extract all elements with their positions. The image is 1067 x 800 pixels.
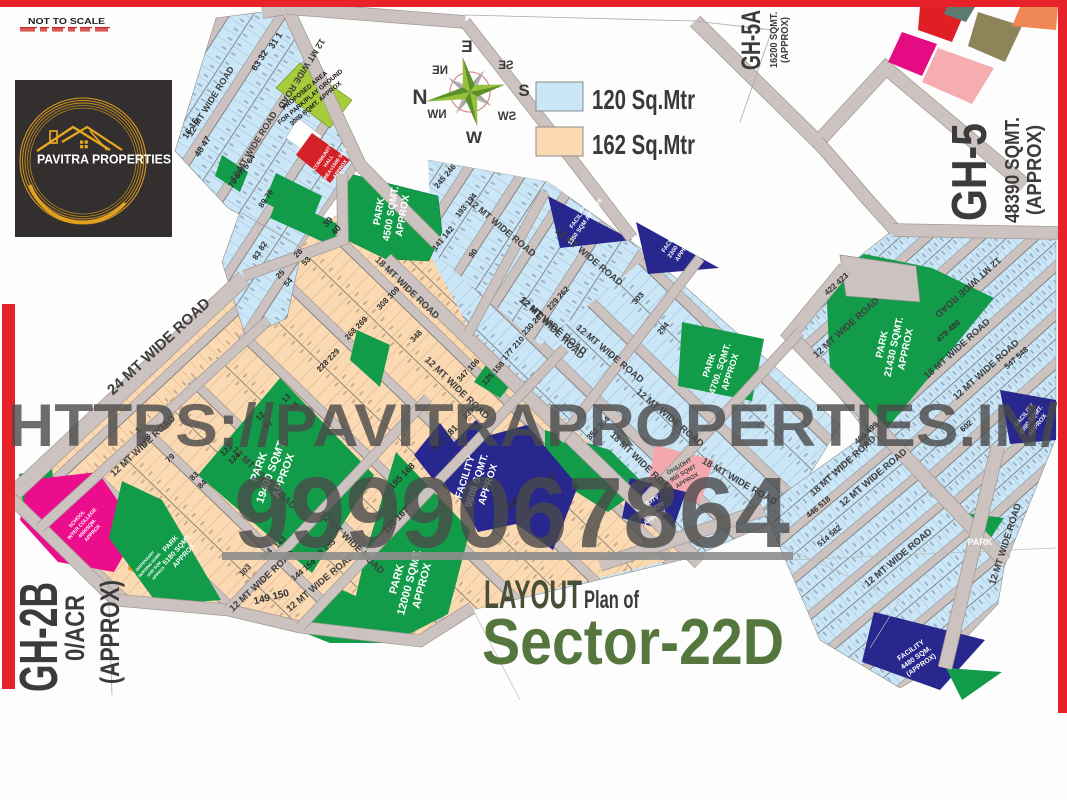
svg-text:162 Sq.Mtr: 162 Sq.Mtr — [592, 129, 695, 160]
svg-text:(APPROX): (APPROX) — [1024, 125, 1046, 215]
svg-text:48390 SQMT.: 48390 SQMT. — [1002, 117, 1024, 223]
svg-text:HTTPS://PAVITRAPROPERTIES.IN/: HTTPS://PAVITRAPROPERTIES.IN/ — [8, 392, 1058, 459]
svg-text:PARK: PARK — [968, 537, 993, 547]
svg-text:E: E — [461, 37, 472, 56]
svg-text:S: S — [518, 81, 529, 100]
svg-text:0/ACR: 0/ACR — [60, 595, 90, 661]
svg-text:NW: NW — [427, 109, 446, 121]
svg-text:120 Sq.Mtr: 120 Sq.Mtr — [592, 84, 695, 115]
svg-text:Sector-22D: Sector-22D — [482, 605, 784, 678]
svg-text:NE: NE — [432, 65, 448, 77]
svg-text:16200 SQMT.: 16200 SQMT. — [769, 12, 780, 68]
svg-text:PAVITRA PROPERTIES: PAVITRA PROPERTIES — [37, 152, 171, 167]
svg-text:SW: SW — [498, 111, 517, 123]
svg-text:W: W — [465, 128, 482, 147]
svg-text:(APPROX): (APPROX) — [95, 580, 125, 684]
svg-text:GH-5A: GH-5A — [736, 10, 766, 70]
svg-text:SE: SE — [498, 60, 514, 72]
svg-text:GH-5: GH-5 — [943, 123, 997, 221]
svg-text:N: N — [412, 86, 427, 109]
svg-text:(APPROX): (APPROX) — [780, 17, 791, 63]
svg-text:NOT TO SCALE: NOT TO SCALE — [28, 17, 106, 26]
